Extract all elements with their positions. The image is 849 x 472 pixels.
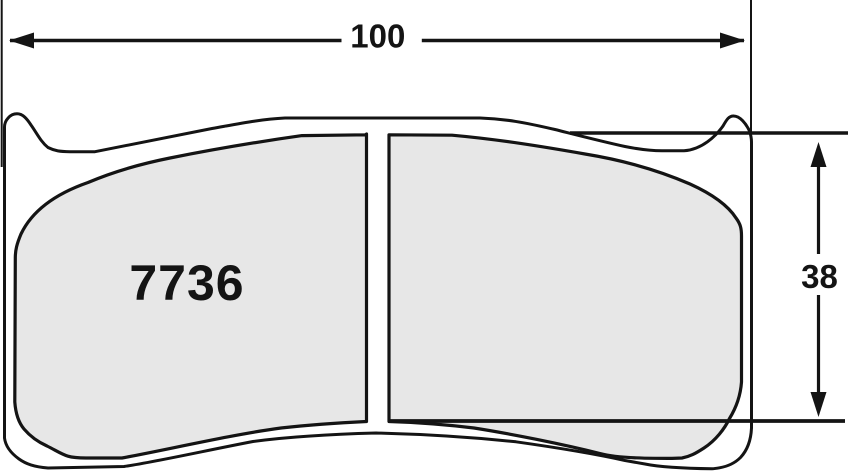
svg-text:7736: 7736: [129, 255, 244, 311]
svg-text:38: 38: [801, 258, 838, 295]
svg-text:100: 100: [350, 18, 405, 55]
